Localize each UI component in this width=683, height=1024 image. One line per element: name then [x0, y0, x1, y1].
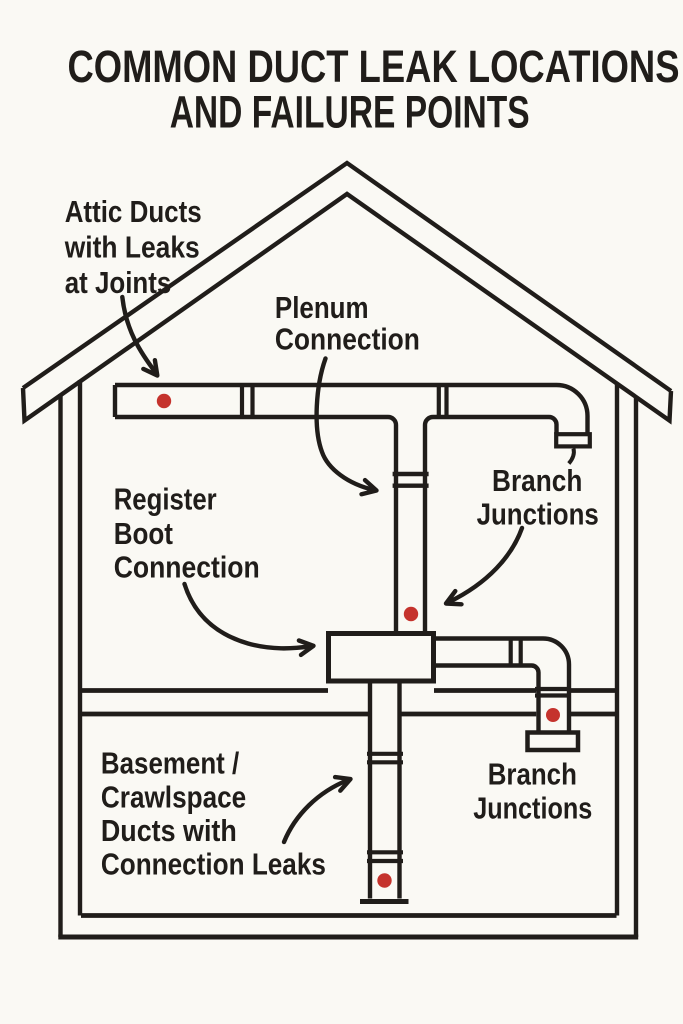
- svg-text:Crawlspace: Crawlspace: [101, 780, 246, 815]
- svg-text:Junctions: Junctions: [477, 496, 599, 531]
- svg-text:AND FAILURE POINTS: AND FAILURE POINTS: [170, 87, 530, 138]
- svg-text:Branch: Branch: [488, 757, 577, 792]
- svg-text:COMMON DUCT LEAK LOCATIONS: COMMON DUCT LEAK LOCATIONS: [68, 41, 680, 92]
- svg-text:Connection: Connection: [114, 550, 260, 585]
- svg-text:Attic Ducts: Attic Ducts: [65, 194, 202, 229]
- svg-text:Connection: Connection: [275, 322, 420, 357]
- svg-text:Plenum: Plenum: [275, 290, 369, 325]
- svg-text:Ducts with: Ducts with: [101, 813, 237, 848]
- svg-text:with Leaks: with Leaks: [64, 230, 200, 265]
- svg-text:Branch: Branch: [492, 463, 582, 498]
- svg-text:Basement /: Basement /: [101, 746, 240, 781]
- svg-text:Register: Register: [114, 482, 217, 517]
- svg-text:Boot: Boot: [114, 516, 173, 551]
- svg-text:at Joints: at Joints: [65, 265, 172, 300]
- svg-text:Junctions: Junctions: [473, 790, 592, 825]
- svg-text:Connection Leaks: Connection Leaks: [101, 846, 326, 881]
